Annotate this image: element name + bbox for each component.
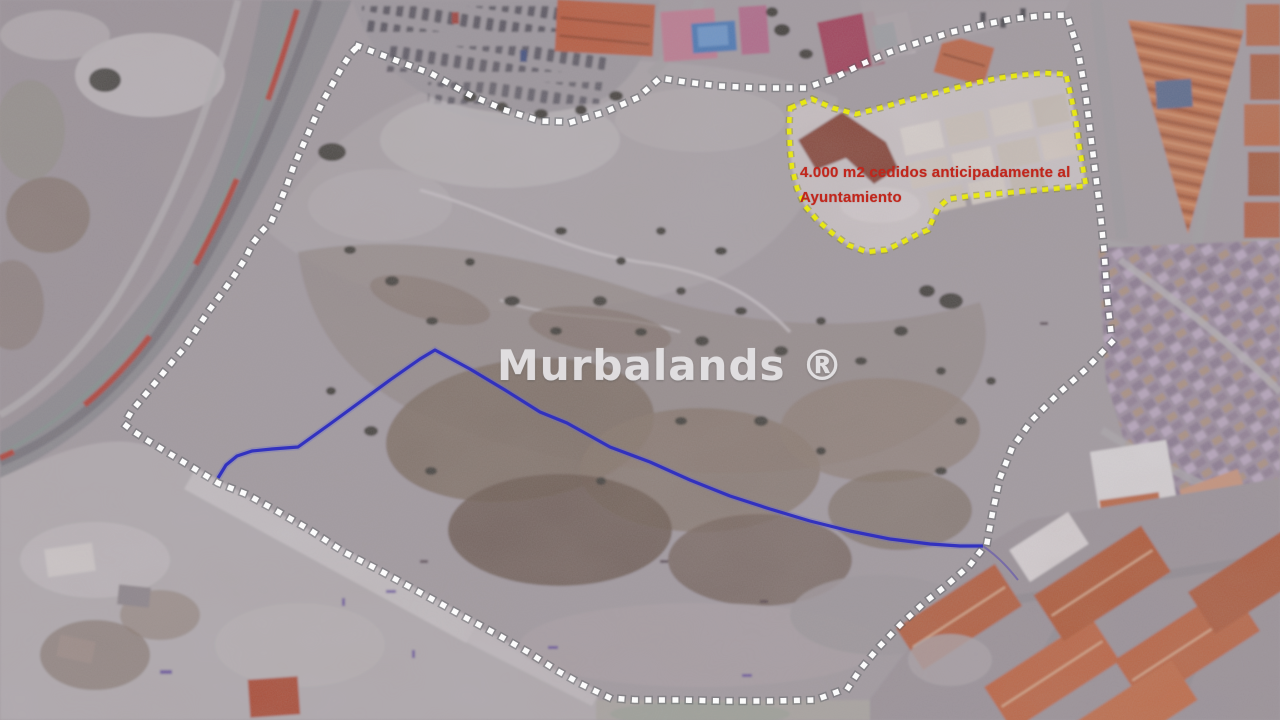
- watermark: Murbalands ®: [497, 341, 844, 390]
- ceded-area-note-line1: 4.000 m2 cedidos anticipadamente al: [800, 160, 1070, 185]
- ceded-area-note-line2: Ayuntamiento: [800, 185, 1070, 210]
- aerial-map: 4.000 m2 cedidos anticipadamente al Ayun…: [0, 0, 1280, 720]
- ceded-area-note: 4.000 m2 cedidos anticipadamente al Ayun…: [800, 160, 1070, 210]
